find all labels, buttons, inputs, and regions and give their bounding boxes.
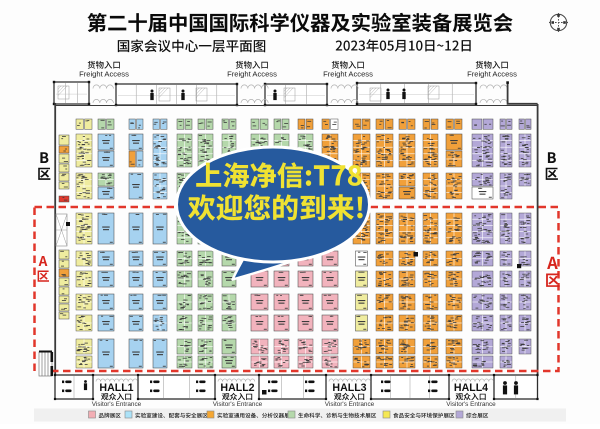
svg-text:HALL3: HALL3 bbox=[332, 382, 366, 394]
svg-text:Visitor's Entrance: Visitor's Entrance bbox=[92, 401, 142, 408]
svg-text:Freight Access: Freight Access bbox=[227, 70, 277, 79]
svg-text:Freight Access: Freight Access bbox=[467, 70, 517, 79]
svg-text:HALL4: HALL4 bbox=[454, 382, 488, 394]
svg-text:Visitor's Entrance: Visitor's Entrance bbox=[325, 401, 375, 408]
svg-text:Visitor's Entrance: Visitor's Entrance bbox=[213, 401, 263, 408]
svg-text:Visitor's Entrance: Visitor's Entrance bbox=[446, 401, 496, 408]
svg-text:HALL2: HALL2 bbox=[220, 382, 254, 394]
svg-text:Freight Access: Freight Access bbox=[323, 70, 373, 79]
svg-text:Freight Access: Freight Access bbox=[79, 70, 129, 79]
svg-text:HALL1: HALL1 bbox=[99, 382, 133, 394]
